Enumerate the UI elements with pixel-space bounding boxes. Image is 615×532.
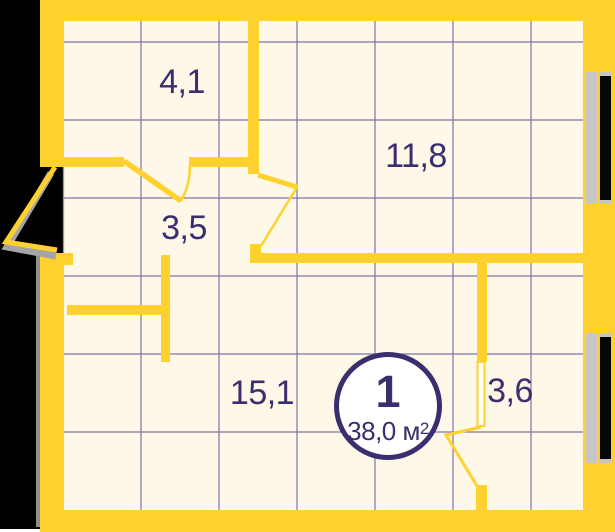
room-area-label-4-1: 4,1	[159, 65, 205, 99]
window-glass	[600, 76, 611, 200]
wall-hallway-top-left	[64, 157, 124, 167]
door-leaf	[478, 362, 485, 426]
wall-vertical-center	[248, 21, 259, 174]
outside-area	[0, 0, 40, 529]
interior-floor	[64, 21, 583, 510]
wall-bathroom	[477, 263, 487, 362]
wall-livingroom-bottom	[250, 253, 583, 263]
window-frame	[586, 72, 597, 204]
wall-nub-left	[64, 253, 73, 265]
wall-shadow	[36, 251, 40, 527]
unit-total-area-value: 38,0 м	[347, 416, 420, 446]
wall-stub-bathroom	[476, 485, 487, 510]
room-area-label-3-5: 3,5	[161, 211, 207, 245]
unit-total-area-sup: 2	[420, 419, 429, 438]
unit-badge: 1 38,0 м2	[334, 352, 442, 460]
room-area-label-15-1: 15,1	[230, 376, 294, 410]
floor-plan-drawing	[0, 0, 615, 532]
window-glass	[600, 337, 611, 459]
unit-total-area: 38,0 м2	[347, 417, 429, 446]
window-frame	[586, 333, 597, 463]
floor-plan: 4,1 11,8 3,5 15,1 3,6 1 38,0 м2	[0, 0, 615, 532]
wall-closet-horizontal	[67, 305, 170, 315]
room-area-label-11-8: 11,8	[385, 139, 447, 173]
unit-number: 1	[375, 369, 400, 414]
room-area-label-3-6: 3,6	[487, 374, 533, 408]
